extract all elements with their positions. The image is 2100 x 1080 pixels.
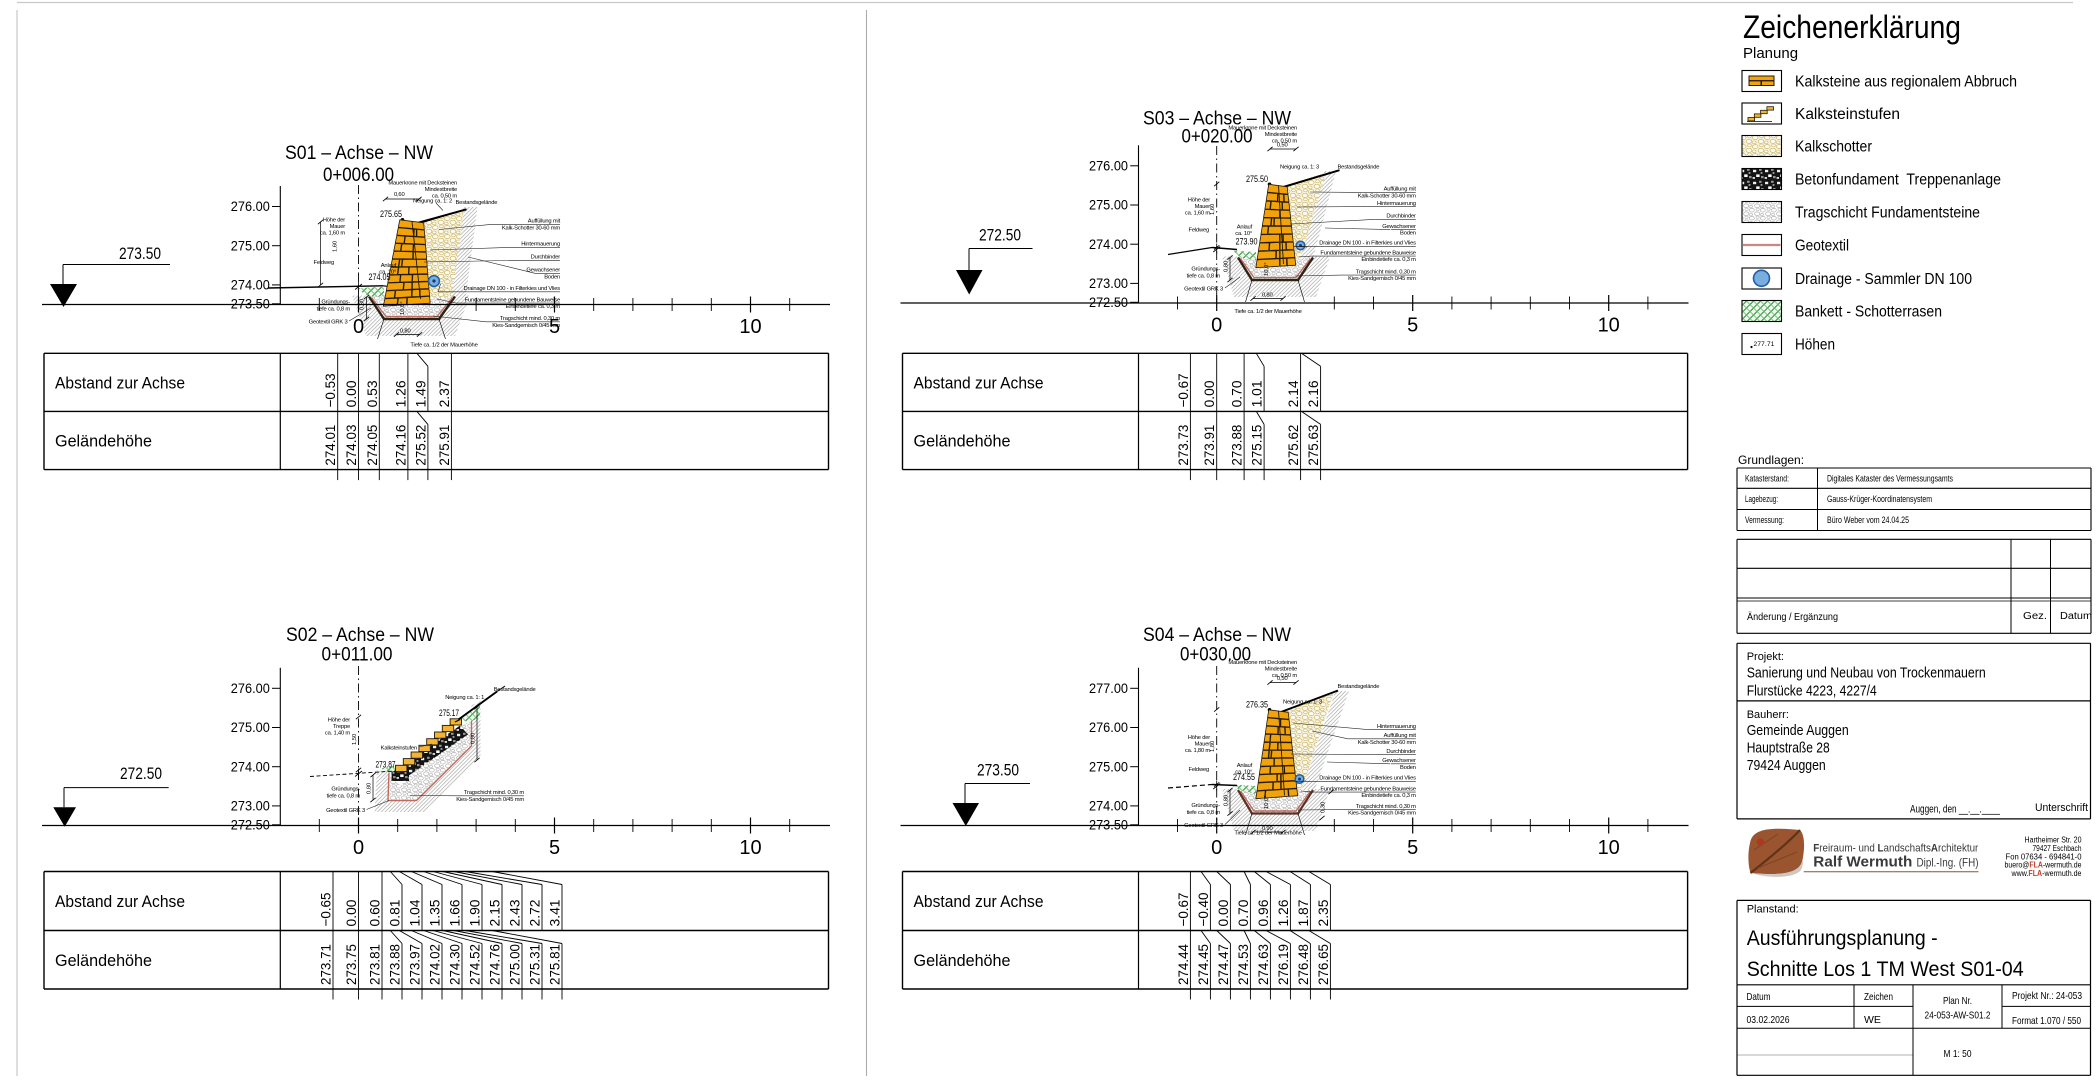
svg-text:ca. 1,40 m: ca. 1,40 m [325, 731, 350, 737]
svg-text:Bestandsgelände: Bestandsgelände [1338, 165, 1380, 171]
svg-text:Fundamentsteine gebundene Bauw: Fundamentsteine gebundene Bauweise [1320, 786, 1415, 792]
svg-text:1,50: 1,50 [352, 734, 358, 745]
svg-text:Tragschicht mind. 0,30 m: Tragschicht mind. 0,30 m [1356, 804, 1416, 810]
svg-text:Mauer: Mauer [1195, 204, 1211, 210]
svg-text:Feldweg: Feldweg [1188, 767, 1209, 773]
svg-text:0,80: 0,80 [367, 783, 373, 794]
svg-text:Boden: Boden [544, 274, 560, 280]
svg-text:0,50: 0,50 [1277, 676, 1287, 682]
svg-text:2.43: 2.43 [507, 899, 523, 926]
svg-text:Kalksteine aus regionalem Abbr: Kalksteine aus regionalem Abbruch [1795, 74, 2017, 91]
svg-text:79424 Auggen: 79424 Auggen [1747, 758, 1826, 774]
svg-text:1.26: 1.26 [1275, 899, 1291, 926]
svg-text:Gemeinde Auggen: Gemeinde Auggen [1747, 723, 1849, 739]
svg-text:273.88: 273.88 [387, 944, 403, 985]
svg-text:1.04: 1.04 [407, 899, 423, 926]
svg-text:Zeichen: Zeichen [1864, 991, 1893, 1003]
svg-text:0.00: 0.00 [343, 899, 359, 926]
svg-text:2.15: 2.15 [487, 899, 503, 926]
svg-text:10,0°: 10,0° [1264, 262, 1270, 276]
svg-text:Zeichenerklärung: Zeichenerklärung [1743, 9, 1961, 45]
svg-text:Abstand zur Achse: Abstand zur Achse [55, 892, 185, 911]
svg-text:272.50: 272.50 [979, 227, 1021, 245]
svg-text:1.26: 1.26 [392, 380, 408, 407]
svg-text:275.81: 275.81 [547, 944, 563, 985]
svg-text:274.45: 274.45 [1195, 944, 1211, 985]
svg-text:274.00: 274.00 [231, 758, 270, 774]
svg-text:Mauer: Mauer [330, 224, 346, 230]
svg-text:Gründungs-: Gründungs- [1191, 803, 1220, 809]
svg-text:Mauer: Mauer [1195, 742, 1211, 748]
svg-text:273.00: 273.00 [1089, 275, 1128, 291]
svg-text:Tiefe ca. 1/2 der Mauerhöhe: Tiefe ca. 1/2 der Mauerhöhe [1234, 309, 1301, 315]
svg-text:0.00: 0.00 [343, 380, 359, 407]
svg-text:Höhe der: Höhe der [1188, 198, 1211, 204]
svg-text:0.53: 0.53 [364, 380, 380, 407]
svg-text:275.65: 275.65 [380, 209, 402, 219]
svg-text:0,50: 0,50 [1277, 143, 1287, 149]
svg-text:0.60: 0.60 [367, 899, 383, 926]
svg-text:0,60: 0,60 [394, 192, 404, 198]
svg-text:Geotextil GRK 3: Geotextil GRK 3 [326, 808, 365, 814]
svg-text:ca. 1,60 m: ca. 1,60 m [1185, 211, 1210, 217]
svg-text:276.35: 276.35 [1246, 700, 1268, 710]
svg-text:275.17: 275.17 [439, 708, 459, 718]
svg-text:ca. 1,80 m: ca. 1,80 m [1185, 748, 1210, 754]
svg-text:Kies-Sandgemisch 0/45 mm: Kies-Sandgemisch 0/45 mm [1348, 276, 1416, 282]
svg-text:273.71: 273.71 [318, 944, 334, 985]
svg-text:1,60: 1,60 [333, 241, 339, 252]
svg-text:Anlauf: Anlauf [1237, 225, 1253, 231]
svg-text:1.66: 1.66 [447, 899, 463, 926]
svg-text:275.00: 275.00 [1089, 197, 1128, 213]
svg-text:1,60: 1,60 [1210, 204, 1216, 215]
svg-text:10: 10 [1598, 837, 1620, 859]
svg-text:0,80: 0,80 [471, 733, 477, 744]
svg-text:276.00: 276.00 [1089, 157, 1128, 173]
svg-text:Geotextil GRK 3: Geotextil GRK 3 [309, 320, 348, 326]
svg-text:275.52: 275.52 [412, 424, 428, 465]
svg-text:Anlauf: Anlauf [1237, 763, 1253, 769]
svg-text:273.50: 273.50 [977, 762, 1019, 780]
svg-text:Planstand:: Planstand: [1747, 904, 1799, 916]
svg-text:274.76: 274.76 [487, 944, 503, 985]
svg-text:Gründungs-: Gründungs- [331, 787, 360, 793]
svg-text:Drainage DN 100 - in Filterkie: Drainage DN 100 - in Filterkies und Vlie… [463, 286, 560, 292]
svg-text:274.00: 274.00 [231, 277, 270, 293]
svg-text:Tragschicht mind. 0,30 m: Tragschicht mind. 0,30 m [464, 790, 524, 796]
svg-text:Auggen, den __.__.____: Auggen, den __.__.____ [1910, 804, 2001, 816]
svg-text:2.16: 2.16 [1305, 380, 1321, 407]
svg-text:10: 10 [1598, 315, 1620, 337]
svg-text:−0.67: −0.67 [1175, 892, 1191, 926]
svg-text:Kalkschotter: Kalkschotter [1795, 139, 1872, 156]
svg-text:Geländehöhe: Geländehöhe [55, 951, 152, 970]
svg-text:Gewachsener: Gewachsener [1382, 224, 1416, 230]
svg-text:Änderung / Ergänzung: Änderung / Ergänzung [1747, 611, 1838, 623]
svg-text:273.97: 273.97 [407, 944, 423, 985]
svg-text:Kies-Sandgemisch 0/45 mm: Kies-Sandgemisch 0/45 mm [456, 797, 524, 803]
svg-text:273.50: 273.50 [231, 295, 270, 311]
svg-text:274.02: 274.02 [427, 944, 443, 985]
svg-text:Bestandsgelände: Bestandsgelände [494, 687, 536, 693]
svg-text:Gauss-Krüger-Koordinatensystem: Gauss-Krüger-Koordinatensystem [1827, 494, 1932, 504]
svg-text:Tiefe ca. 1/2 der Mauerhöhe: Tiefe ca. 1/2 der Mauerhöhe [410, 343, 477, 349]
svg-text:Durchbinder: Durchbinder [531, 255, 561, 261]
svg-text:5: 5 [549, 837, 560, 859]
svg-text:Fundamentsteine gebundene Bauw: Fundamentsteine gebundene Bauweise [465, 297, 560, 303]
svg-text:S02 – Achse – NW: S02 – Achse – NW [286, 625, 434, 646]
svg-text:274.01: 274.01 [322, 424, 338, 465]
svg-text:tiefe ca. 0,8 m: tiefe ca. 0,8 m [1187, 810, 1221, 816]
svg-text:Auffüllung mit: Auffüllung mit [528, 219, 561, 225]
svg-text:0+011.00: 0+011.00 [322, 645, 393, 666]
svg-text:Mauerkrone mit Decksteinen: Mauerkrone mit Decksteinen [388, 181, 457, 187]
svg-text:Katasterstand:: Katasterstand: [1745, 473, 1789, 483]
svg-text:S04 – Achse – NW: S04 – Achse – NW [1143, 625, 1291, 646]
svg-text:Datum: Datum [1747, 991, 1771, 1003]
svg-text:−0.65: −0.65 [318, 892, 334, 926]
svg-text:273.50: 273.50 [1089, 816, 1128, 832]
svg-text:tiefe ca. 0,8 m: tiefe ca. 0,8 m [1187, 274, 1221, 280]
svg-text:Höhe der: Höhe der [328, 718, 351, 724]
svg-text:tiefe ca. 0,8 m: tiefe ca. 0,8 m [327, 794, 361, 800]
svg-text:0.00: 0.00 [1201, 380, 1217, 407]
svg-text:10,0°: 10,0° [1264, 795, 1270, 809]
svg-text:272.50: 272.50 [1089, 294, 1128, 310]
svg-text:Format 1.070 / 550: Format 1.070 / 550 [2012, 1015, 2081, 1027]
svg-text:Bankett - Schotterrasen: Bankett - Schotterrasen [1795, 304, 1942, 321]
svg-text:0,80: 0,80 [400, 329, 410, 335]
svg-text:274.00: 274.00 [1089, 236, 1128, 252]
svg-text:Vermessung:: Vermessung: [1745, 515, 1784, 525]
svg-text:03.02.2026: 03.02.2026 [1747, 1014, 1790, 1026]
svg-text:Anlauf: Anlauf [381, 263, 397, 269]
svg-text:Kies-Sandgemisch 0/45 mm: Kies-Sandgemisch 0/45 mm [1348, 811, 1416, 817]
svg-text:273.75: 273.75 [343, 944, 359, 985]
svg-text:275.00: 275.00 [1089, 758, 1128, 774]
svg-text:Abstand zur Achse: Abstand zur Achse [914, 892, 1044, 911]
svg-text:Einbindetiefe ca. 0,3 m: Einbindetiefe ca. 0,3 m [1361, 257, 1416, 263]
svg-text:5: 5 [1407, 315, 1418, 337]
svg-text:Mindestbreite: Mindestbreite [1265, 667, 1297, 673]
svg-text:0: 0 [1211, 837, 1222, 859]
svg-text:Drainage DN 100 - in Filterkie: Drainage DN 100 - in Filterkies und Vlie… [1319, 776, 1416, 782]
svg-text:Höhen: Höhen [1795, 337, 1835, 354]
svg-text:273.73: 273.73 [1175, 424, 1191, 465]
svg-text:2.14: 2.14 [1285, 380, 1301, 407]
svg-text:www.FLA-wermuth.de: www.FLA-wermuth.de [2011, 869, 2082, 878]
svg-text:273.90: 273.90 [1236, 237, 1258, 247]
svg-text:Datum: Datum [2060, 611, 2092, 622]
svg-text:Sanierung und Neubau von Trock: Sanierung und Neubau von Trockenmauern [1747, 666, 1986, 682]
svg-text:−0.53: −0.53 [322, 373, 338, 407]
svg-text:10: 10 [739, 837, 761, 859]
svg-text:Geländehöhe: Geländehöhe [914, 951, 1011, 970]
svg-text:0.96: 0.96 [1255, 899, 1271, 926]
svg-text:275.15: 275.15 [1249, 424, 1265, 465]
svg-text:Hintermauerung: Hintermauerung [521, 242, 560, 248]
svg-text:274.00: 274.00 [1089, 798, 1128, 814]
svg-text:0+006.00: 0+006.00 [323, 165, 394, 186]
svg-text:273.00: 273.00 [231, 798, 270, 814]
svg-text:276.48: 276.48 [1295, 944, 1311, 985]
svg-text:Treppe: Treppe [333, 724, 350, 730]
svg-text:Tiefe ca. 1/2 der Mauerhöhe: Tiefe ca. 1/2 der Mauerhöhe [1234, 831, 1301, 837]
svg-text:Auffüllung mit: Auffüllung mit [1384, 187, 1417, 193]
svg-text:−0.67: −0.67 [1175, 373, 1191, 407]
svg-text:Abstand zur Achse: Abstand zur Achse [55, 373, 185, 392]
svg-text:Hintermauerung: Hintermauerung [1377, 724, 1416, 730]
svg-text:Abstand zur Achse: Abstand zur Achse [914, 373, 1044, 392]
svg-text:Boden: Boden [1400, 231, 1416, 237]
svg-text:Flurstücke 4223, 4227/4: Flurstücke 4223, 4227/4 [1747, 684, 1877, 700]
svg-text:2.35: 2.35 [1315, 899, 1331, 926]
svg-text:275.00: 275.00 [507, 944, 523, 985]
svg-text:tiefe ca. 0,8 m: tiefe ca. 0,8 m [317, 307, 351, 313]
svg-text:275.00: 275.00 [231, 719, 270, 735]
svg-text:Tragschicht mind. 0,30 m: Tragschicht mind. 0,30 m [1356, 269, 1416, 275]
svg-text:Neigung ca. 1: 1: Neigung ca. 1: 1 [445, 695, 484, 701]
svg-text:273.87: 273.87 [376, 760, 396, 770]
svg-text:276.00: 276.00 [231, 680, 270, 696]
svg-text:274.53: 274.53 [1235, 944, 1251, 985]
svg-text:Digitales Kataster des Vermess: Digitales Kataster des Vermessungsamts [1827, 473, 1953, 483]
svg-text:Tragschicht Fundamentsteine: Tragschicht Fundamentsteine [1795, 205, 1980, 222]
svg-text:275.63: 275.63 [1305, 424, 1321, 465]
svg-text:S01 – Achse – NW: S01 – Achse – NW [285, 143, 433, 164]
svg-text:Ralf Wermuth: Ralf Wermuth [1813, 854, 1912, 871]
svg-text:Durchbinder: Durchbinder [1386, 214, 1416, 220]
svg-text:Büro Weber vom 24.04.25: Büro Weber vom 24.04.25 [1827, 515, 1909, 525]
svg-text:274.30: 274.30 [447, 944, 463, 985]
svg-text:Mauerkrone mit Decksteinen: Mauerkrone mit Decksteinen [1228, 660, 1297, 666]
svg-text:1.87: 1.87 [1295, 899, 1311, 926]
svg-text:0.70: 0.70 [1229, 380, 1245, 407]
svg-text:ca. 1,60 m: ca. 1,60 m [320, 231, 345, 237]
svg-text:273.91: 273.91 [1201, 424, 1217, 465]
svg-text:5: 5 [1407, 837, 1418, 859]
svg-text:Schnitte Los 1 TM West S01-04: Schnitte Los 1 TM West S01-04 [1747, 957, 2024, 981]
svg-text:Höhe der: Höhe der [1188, 735, 1211, 741]
svg-text:0.00: 0.00 [1215, 899, 1231, 926]
svg-text:Neigung ca. 1: 3: Neigung ca. 1: 3 [1283, 700, 1322, 706]
svg-text:275.00: 275.00 [231, 237, 270, 253]
svg-text:1.49: 1.49 [412, 380, 428, 407]
svg-text:277.00: 277.00 [1089, 680, 1128, 696]
svg-text:Durchbinder: Durchbinder [1386, 749, 1416, 755]
svg-text:Bestandsgelände: Bestandsgelände [1338, 684, 1380, 690]
svg-text:0,80: 0,80 [1262, 293, 1272, 299]
svg-text:0: 0 [1211, 315, 1222, 337]
svg-text:Lagebezug:: Lagebezug: [1745, 494, 1778, 504]
svg-text:1,80: 1,80 [1210, 741, 1216, 752]
svg-text:Planung: Planung [1743, 45, 1798, 62]
svg-text:Unterschrift: Unterschrift [2035, 802, 2088, 814]
svg-text:1.01: 1.01 [1249, 380, 1265, 407]
svg-text:Geländehöhe: Geländehöhe [55, 432, 152, 451]
svg-text:Drainage DN 100 - in Filterkie: Drainage DN 100 - in Filterkies und Vlie… [1319, 241, 1416, 247]
svg-text:273.81: 273.81 [367, 944, 383, 985]
svg-text:0,80: 0,80 [1224, 261, 1230, 272]
svg-text:ca. 10°: ca. 10° [1235, 231, 1252, 237]
svg-text:Feldweg: Feldweg [1188, 228, 1209, 234]
svg-text:Höhe der: Höhe der [323, 218, 346, 224]
svg-text:3.41: 3.41 [547, 899, 563, 926]
svg-text:Fundamentsteine gebundene Bauw: Fundamentsteine gebundene Bauweise [1320, 250, 1415, 256]
svg-text:WE: WE [1864, 1014, 1881, 1026]
svg-text:276.65: 276.65 [1315, 944, 1331, 985]
svg-text:Projekt Nr.: 24-053: Projekt Nr.: 24-053 [2012, 990, 2082, 1002]
svg-text:Geotextil GRK 3: Geotextil GRK 3 [1184, 287, 1223, 293]
svg-text:Feldweg: Feldweg [313, 260, 334, 266]
svg-text:274.52: 274.52 [467, 944, 483, 985]
svg-text:272.50: 272.50 [120, 765, 162, 783]
svg-text:Kalk-Schotter 30-60 mm: Kalk-Schotter 30-60 mm [502, 225, 560, 231]
svg-text:0.70: 0.70 [1235, 899, 1251, 926]
svg-text:M 1: 50: M 1: 50 [1944, 1048, 1972, 1060]
svg-text:Gründungs-: Gründungs- [1191, 267, 1220, 273]
svg-text:Bauherr:: Bauherr: [1747, 709, 1789, 721]
svg-text:Kalk-Schotter 30-60 mm: Kalk-Schotter 30-60 mm [1358, 193, 1416, 199]
svg-text:Hintermauerung: Hintermauerung [1377, 201, 1416, 207]
svg-text:274.03: 274.03 [343, 424, 359, 465]
svg-text:276.19: 276.19 [1275, 944, 1291, 985]
svg-text:Plan Nr.: Plan Nr. [1943, 995, 1972, 1007]
svg-text:273.50: 273.50 [119, 245, 161, 263]
svg-text:2.72: 2.72 [527, 899, 543, 926]
svg-text:Mindestbreite: Mindestbreite [1265, 132, 1297, 138]
svg-text:Neigung ca. 1: 3: Neigung ca. 1: 3 [1280, 165, 1319, 171]
svg-text:Boden: Boden [1400, 765, 1416, 771]
svg-text:Betonfundament Treppenanlage: Betonfundament Treppenanlage [1795, 172, 2001, 189]
svg-text:5: 5 [549, 316, 560, 338]
svg-text:274.05: 274.05 [364, 424, 380, 465]
svg-text:Geotextil: Geotextil [1795, 238, 1849, 255]
svg-text:10: 10 [739, 316, 761, 338]
svg-text:Kalk-Schotter 30-60 mm: Kalk-Schotter 30-60 mm [1358, 740, 1416, 746]
svg-text:Bestandsgelände: Bestandsgelände [456, 200, 498, 206]
svg-text:Projekt:: Projekt: [1747, 651, 1784, 663]
svg-text:0: 0 [353, 837, 364, 859]
svg-text:275.62: 275.62 [1285, 424, 1301, 465]
svg-text:Mindestbreite: Mindestbreite [425, 187, 457, 193]
svg-text:273.88: 273.88 [1229, 424, 1245, 465]
svg-text:Ausführungsplanung -: Ausführungsplanung - [1747, 926, 1938, 950]
svg-text:1.35: 1.35 [427, 899, 443, 926]
svg-text:24-053-AW-S01.2: 24-053-AW-S01.2 [1925, 1010, 1991, 1022]
svg-text:272.50: 272.50 [231, 816, 270, 832]
svg-text:275.31: 275.31 [527, 944, 543, 985]
svg-text:Gewachsener: Gewachsener [1382, 758, 1416, 764]
svg-text:276.00: 276.00 [231, 198, 270, 214]
svg-text:0.81: 0.81 [387, 899, 403, 926]
svg-text:0: 0 [353, 316, 364, 338]
svg-text:274.47: 274.47 [1215, 944, 1231, 985]
svg-text:Mauerkrone mit Decksteinen: Mauerkrone mit Decksteinen [1228, 126, 1297, 132]
svg-text:Einbindetiefe ca. 0,3 m: Einbindetiefe ca. 0,3 m [1361, 793, 1416, 799]
svg-text:ca. 10°: ca. 10° [1235, 770, 1252, 776]
svg-text:Gez.: Gez. [2023, 611, 2047, 622]
svg-text:277.71: 277.71 [1754, 341, 1775, 348]
svg-text:Hauptstraße 28: Hauptstraße 28 [1747, 741, 1830, 757]
svg-text:Auffüllung mit: Auffüllung mit [1384, 733, 1417, 739]
svg-text:Dipl.-Ing. (FH): Dipl.-Ing. (FH) [1917, 856, 1979, 870]
svg-text:−0.40: −0.40 [1195, 892, 1211, 926]
svg-text:275.91: 275.91 [436, 424, 452, 465]
svg-text:Geländehöhe: Geländehöhe [914, 432, 1011, 451]
svg-text:Kalksteinstufen: Kalksteinstufen [1795, 106, 1900, 123]
svg-text:274.63: 274.63 [1255, 944, 1271, 985]
svg-text:0,30: 0,30 [1321, 802, 1327, 813]
svg-text:0,80: 0,80 [1224, 795, 1230, 806]
svg-text:10,0°: 10,0° [400, 301, 406, 315]
svg-text:275.50: 275.50 [1246, 174, 1268, 184]
svg-text:274.44: 274.44 [1175, 944, 1191, 985]
svg-text:ca. 10°: ca. 10° [379, 270, 396, 276]
svg-text:2.37: 2.37 [436, 380, 452, 407]
svg-text:1.90: 1.90 [467, 899, 483, 926]
svg-text:274.16: 274.16 [392, 424, 408, 465]
svg-text:Kalksteinstufen: Kalksteinstufen [381, 746, 417, 752]
svg-text:Grundlagen:: Grundlagen: [1738, 453, 1804, 467]
svg-text:276.00: 276.00 [1089, 719, 1128, 735]
svg-text:Drainage - Sammler DN 100: Drainage - Sammler DN 100 [1795, 271, 1972, 288]
